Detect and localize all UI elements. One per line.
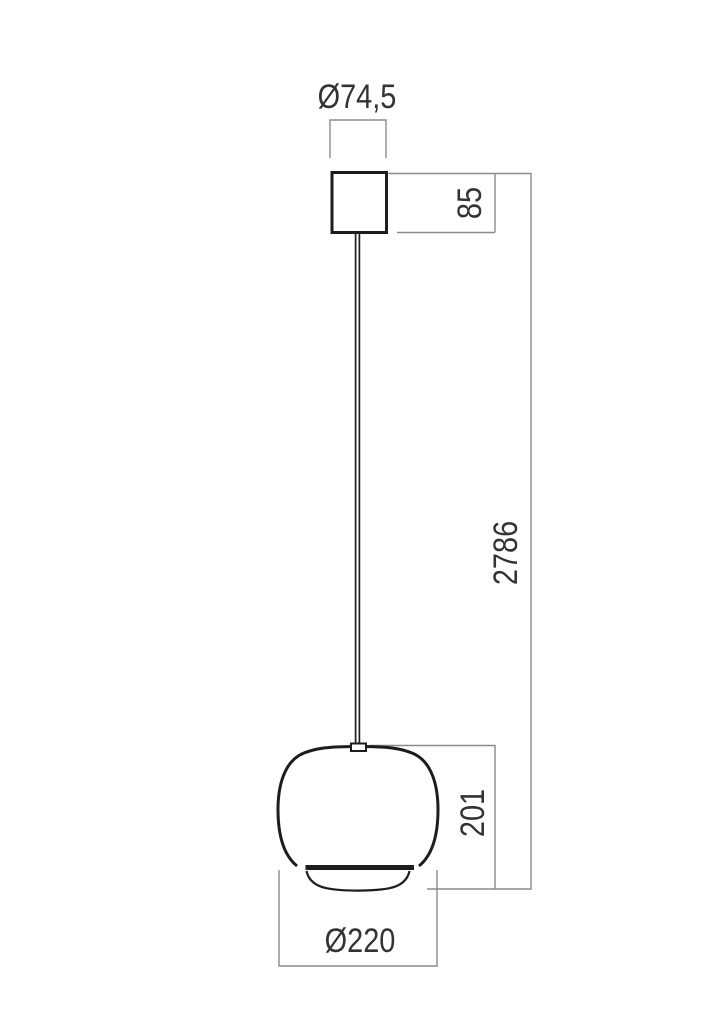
technical-drawing-canvas: Ø74,5 85 2786 201 Ø220 bbox=[0, 0, 717, 1024]
canopy-outline bbox=[332, 173, 387, 233]
diffuser-outline bbox=[307, 871, 410, 891]
dim-label-canopy-height: 85 bbox=[453, 187, 487, 219]
dim-label-shade-height: 201 bbox=[456, 789, 490, 837]
dim-label-suspension-length: 2786 bbox=[489, 521, 523, 585]
dim-bracket-canopy-diameter bbox=[330, 120, 386, 158]
pendant-lamp-drawing bbox=[0, 0, 717, 1024]
cable-collar bbox=[351, 744, 366, 752]
dim-label-shade-diameter: Ø220 bbox=[325, 924, 396, 958]
shade-body-outline bbox=[278, 747, 438, 867]
dim-label-canopy-diameter: Ø74,5 bbox=[318, 80, 397, 114]
lamp-outline-group bbox=[278, 173, 438, 891]
suspension-cable bbox=[356, 232, 360, 744]
